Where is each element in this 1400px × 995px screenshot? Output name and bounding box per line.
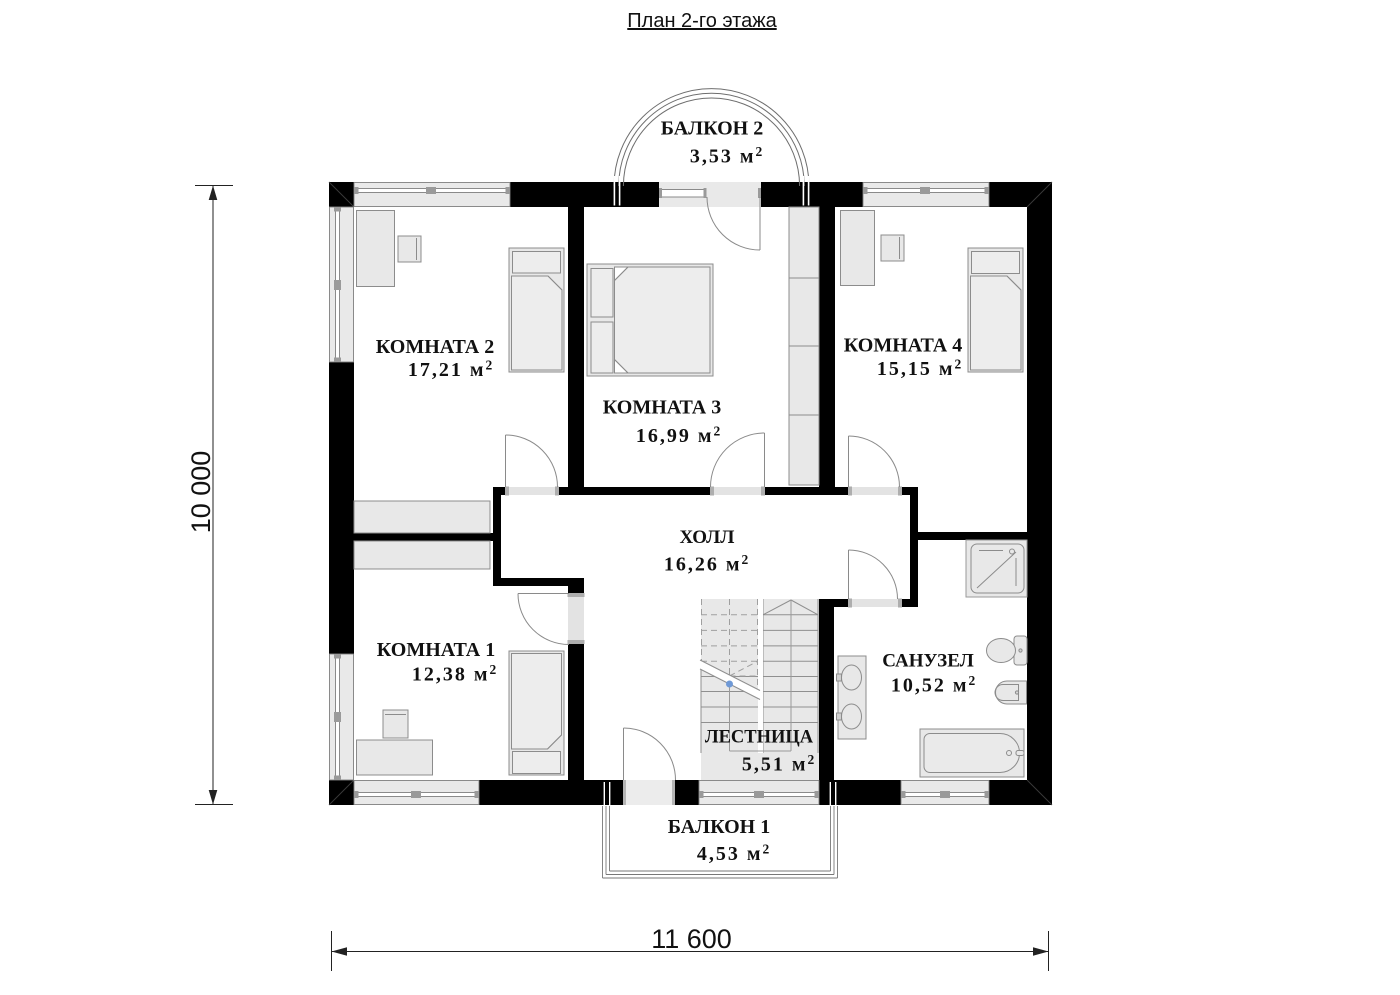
svg-text:КОМНАТА 1: КОМНАТА 1 — [377, 639, 495, 661]
svg-text:10 000: 10 000 — [186, 451, 216, 534]
svg-text:16,99 м2: 16,99 м2 — [636, 424, 722, 448]
svg-text:КОМНАТА 4: КОМНАТА 4 — [844, 335, 962, 357]
svg-text:5,51 м2: 5,51 м2 — [742, 752, 816, 776]
svg-text:ЛЕСТНИЦА: ЛЕСТНИЦА — [705, 728, 814, 748]
svg-text:САНУЗЕЛ: САНУЗЕЛ — [882, 651, 974, 672]
svg-text:10,52 м2: 10,52 м2 — [891, 673, 977, 697]
svg-text:3,53 м2: 3,53 м2 — [690, 144, 764, 168]
svg-text:12,38 м2: 12,38 м2 — [412, 662, 498, 686]
svg-text:4,53 м2: 4,53 м2 — [697, 842, 771, 866]
svg-text:БАЛКОН 2: БАЛКОН 2 — [661, 118, 763, 140]
svg-text:ХОЛЛ: ХОЛЛ — [680, 527, 735, 548]
svg-text:16,26 м2: 16,26 м2 — [664, 552, 750, 576]
svg-text:КОМНАТА 2: КОМНАТА 2 — [376, 336, 494, 358]
svg-text:11 600: 11 600 — [651, 924, 732, 954]
svg-text:КОМНАТА 3: КОМНАТА 3 — [603, 397, 721, 419]
svg-text:17,21 м2: 17,21 м2 — [408, 358, 494, 382]
svg-text:БАЛКОН 1: БАЛКОН 1 — [668, 816, 770, 838]
svg-text:План 2-го этажа: План 2-го этажа — [627, 10, 777, 32]
svg-text:15,15 м2: 15,15 м2 — [877, 357, 963, 381]
